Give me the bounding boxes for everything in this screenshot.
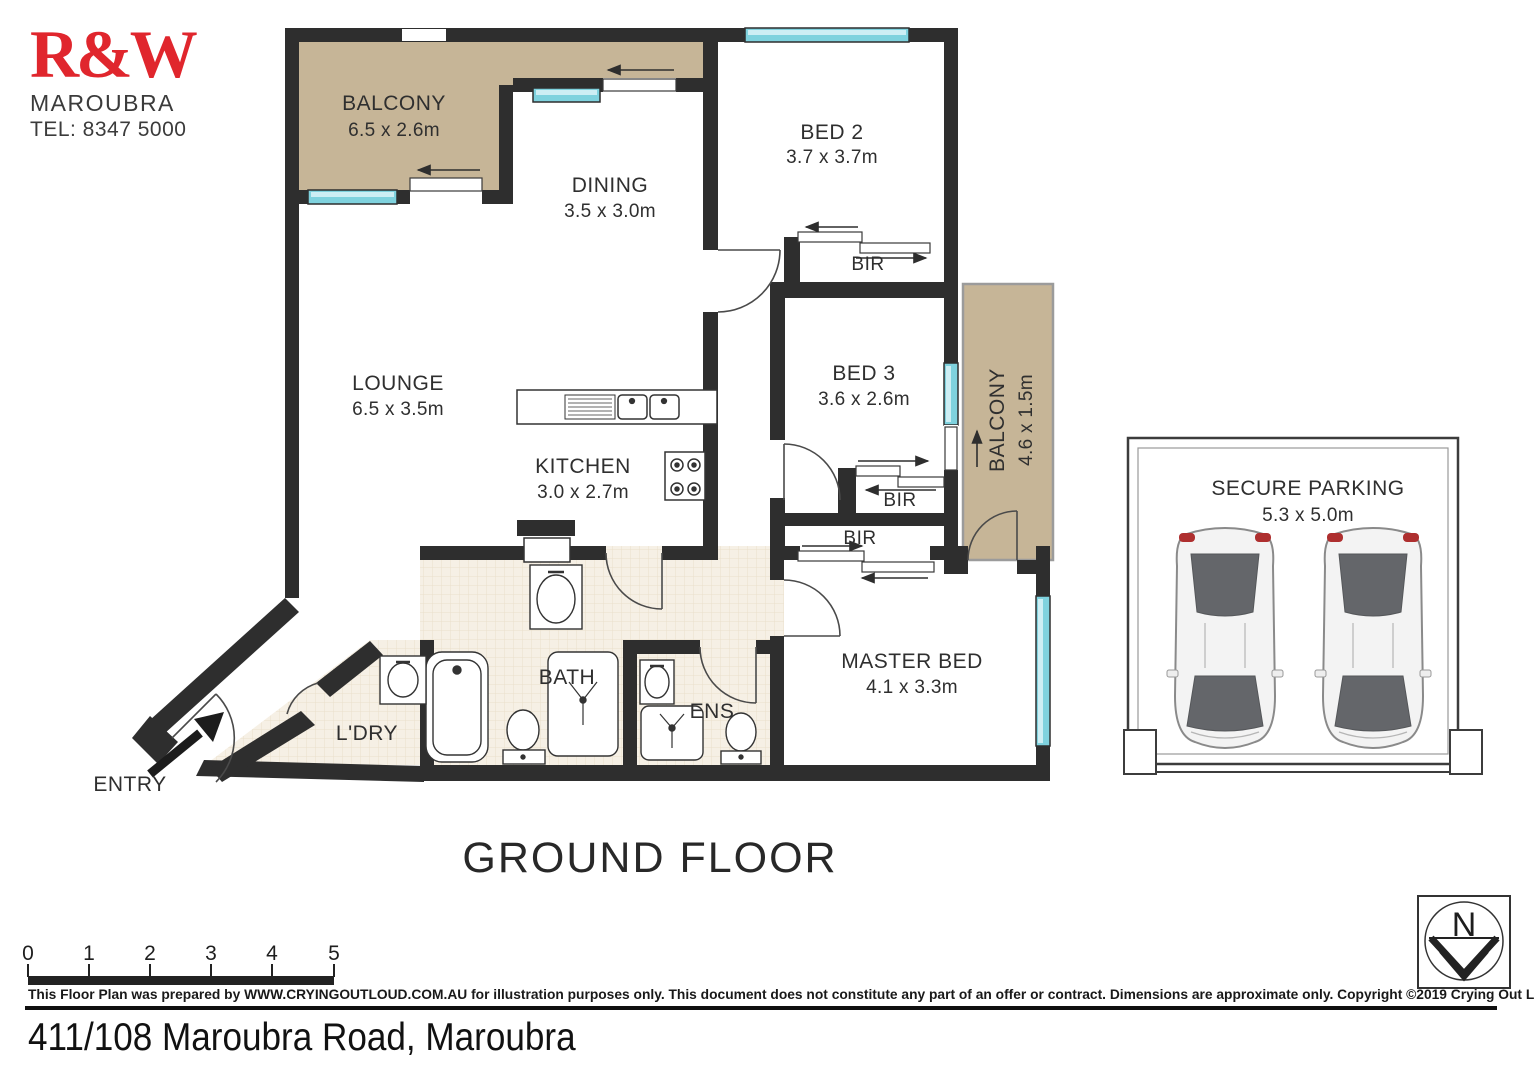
balcony-window: [308, 190, 397, 204]
bed3-bir-door-a: [856, 466, 900, 476]
room-label-bed2: BED 2: [800, 121, 863, 144]
kitchen-bench: [524, 538, 570, 562]
scale-tick-1: 1: [83, 942, 95, 965]
floorplan-canvas: BALCONY 6.5 x 2.6m DINING 3.5 x 3.0m BED…: [0, 0, 1534, 1084]
bed3-door: [784, 444, 840, 500]
dining-slider: [603, 79, 676, 91]
scale-tick-4: 4: [266, 942, 278, 965]
disclaimer-text: This Floor Plan was prepared by WWW.CRYI…: [28, 986, 1501, 1002]
north-arrow-icon: N: [1418, 896, 1510, 988]
car-right: [1315, 528, 1431, 748]
master-window: [1036, 596, 1050, 746]
scale-tick-0: 0: [22, 942, 34, 965]
secure-parking: SECURE PARKING 5.3 x 5.0m: [1124, 438, 1482, 774]
room-label-entry: ENTRY: [93, 773, 166, 796]
room-label-dining: DINING: [572, 174, 649, 197]
ens-basin: [640, 660, 674, 704]
room-label-lounge: LOUNGE: [352, 372, 444, 395]
parking-pier-right: [1450, 730, 1482, 774]
bathtub: [426, 652, 488, 762]
room-dims-lounge: 6.5 x 3.5m: [352, 399, 444, 420]
parking-label: SECURE PARKING: [1211, 477, 1404, 500]
dining-window: [533, 88, 600, 102]
room-label-bed3-bir: BIR: [883, 490, 916, 511]
kitchen-counter: [517, 390, 717, 424]
room-label-laundry: L'DRY: [336, 722, 398, 745]
bed2-window: [745, 28, 909, 42]
kitchen-sink: [565, 395, 679, 419]
room-label-bed2-bir: BIR: [851, 254, 884, 275]
cooktop: [665, 452, 705, 500]
room-label-kitchen: KITCHEN: [535, 455, 631, 478]
room-label-balcony-side: BALCONY: [986, 368, 1009, 472]
room-label-bath: BATH: [539, 666, 595, 689]
property-address: 411/108 Maroubra Road, Maroubra: [28, 1016, 576, 1060]
top-wall-opening: [402, 29, 446, 41]
room-label-master: MASTER BED: [841, 650, 983, 673]
master-bir-door-b: [862, 562, 934, 572]
divider-rule: [25, 1006, 1497, 1010]
car-left: [1167, 528, 1283, 748]
scale-tick-5: 5: [328, 942, 340, 965]
bed2-bir-door-b: [860, 243, 930, 253]
balcony-slider: [410, 178, 482, 191]
bath-vanity: [530, 565, 582, 629]
room-dims-balcony-side: 4.6 x 1.5m: [1016, 374, 1037, 466]
bed3-balcony-door: [945, 427, 957, 470]
room-dims-kitchen: 3.0 x 2.7m: [537, 482, 629, 503]
scale-tick-2: 2: [144, 942, 156, 965]
scale-bar: 0 1 2 3 4 5: [22, 942, 340, 985]
room-dims-bed3: 3.6 x 2.6m: [818, 389, 910, 410]
room-dims-balcony-top: 6.5 x 2.6m: [348, 120, 440, 141]
master-bir-door-a: [798, 551, 864, 561]
master-door: [784, 580, 840, 636]
parking-dims: 5.3 x 5.0m: [1262, 505, 1354, 526]
room-dims-dining: 3.5 x 3.0m: [564, 201, 656, 222]
scale-tick-3: 3: [205, 942, 217, 965]
bed3-bir-door-b: [898, 477, 944, 487]
bed2-bir-door-a: [798, 232, 862, 242]
room-dims-bed2: 3.7 x 3.7m: [786, 147, 878, 168]
room-label-balcony-top: BALCONY: [342, 92, 446, 115]
floor-title: GROUND FLOOR: [462, 834, 837, 882]
room-label-master-bir: BIR: [843, 528, 876, 549]
laundry-tub: [380, 656, 426, 704]
room-label-bed3: BED 3: [832, 362, 895, 385]
room-dims-master: 4.1 x 3.3m: [866, 677, 958, 698]
room-label-ens: ENS: [690, 700, 735, 723]
parking-pier-left: [1124, 730, 1156, 774]
bed3-window: [944, 363, 958, 425]
